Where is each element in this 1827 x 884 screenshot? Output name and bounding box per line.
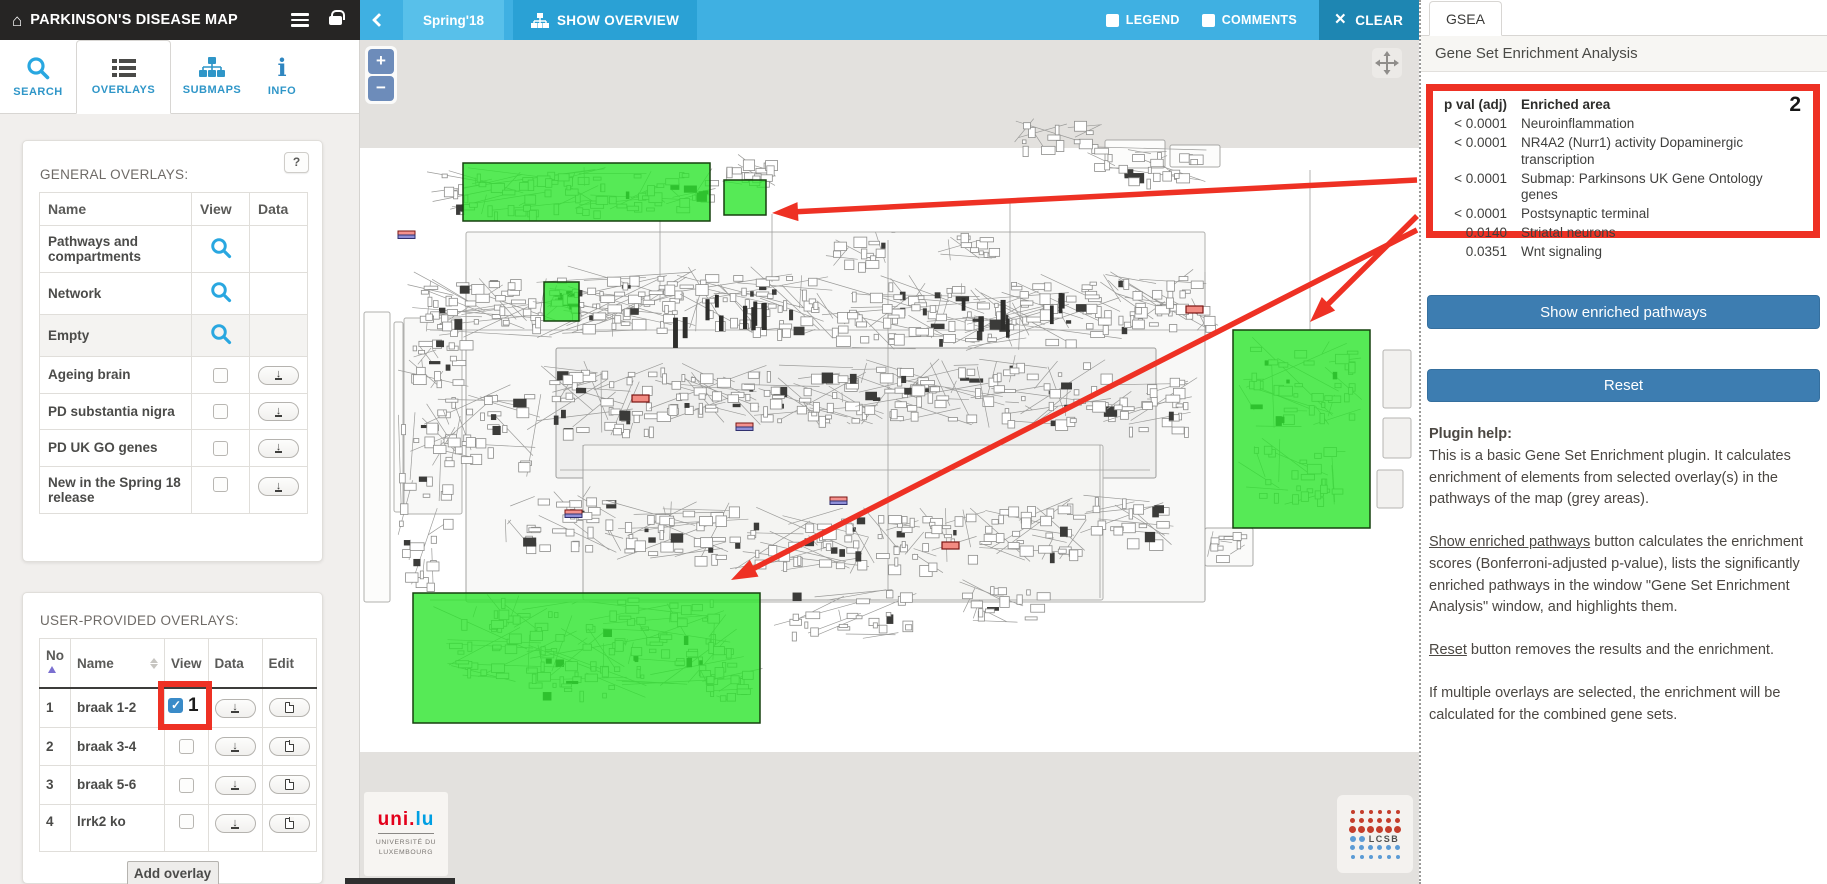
user-overlays-card: USER-PROVIDED OVERLAYS: No Name View Dat…: [22, 592, 323, 884]
reset-button[interactable]: Reset: [1427, 369, 1820, 402]
lock-icon[interactable]: [329, 16, 342, 25]
plugin-help-label: Plugin help:: [1429, 424, 1823, 446]
edit-button[interactable]: [269, 814, 310, 833]
lcsb-dot: [1360, 855, 1364, 859]
back-button[interactable]: [360, 0, 398, 40]
app-header: ⌂ PARKINSON'S DISEASE MAP: [0, 0, 360, 40]
search-icon: [26, 56, 50, 80]
document-page-icon: [285, 702, 294, 713]
left-sidebar: SEARCH OVERLAYS SUBMAPS: [0, 40, 360, 884]
view-checkbox[interactable]: [213, 441, 228, 456]
lcsb-dot: [1394, 826, 1401, 833]
lcsb-dot: [1369, 810, 1373, 814]
enriched-area-highlight[interactable]: [463, 163, 710, 221]
tab-submaps-label: SUBMAPS: [183, 84, 242, 96]
download-button[interactable]: ↓: [215, 699, 256, 718]
view-magnifier-icon[interactable]: [210, 323, 232, 345]
enriched-area-name[interactable]: NR4A2 (Nurr1) activity Dopaminergic tran…: [1521, 134, 1790, 170]
lcsb-dot: [1359, 818, 1365, 824]
overlay-name: PD UK GO genes: [40, 430, 192, 467]
download-button[interactable]: ↓: [258, 477, 299, 496]
sort-icon: [150, 658, 158, 669]
lcsb-dot: [1350, 836, 1356, 842]
lcsb-dot: [1360, 810, 1364, 814]
plugin-help-text: Plugin help: This is a basic Gene Set En…: [1429, 424, 1823, 747]
sidebar-tabs: SEARCH OVERLAYS SUBMAPS: [0, 40, 359, 114]
lcsb-dot: [1369, 855, 1373, 859]
col-header-name: Name: [40, 193, 192, 226]
view-magnifier-icon[interactable]: [210, 237, 232, 259]
col-header-no[interactable]: No: [40, 639, 71, 689]
table-row: PD UK GO genes ↓: [40, 430, 308, 467]
col-header-pval: p val (adj): [1441, 96, 1521, 115]
hierarchy-tree-icon: [531, 13, 549, 28]
table-row: Ageing brain ↓: [40, 357, 308, 394]
overlay-name: Pathways and compartments: [40, 226, 192, 273]
document-page-icon: [285, 818, 294, 829]
overlay-no: 4: [40, 804, 71, 851]
lcsb-dot: [1377, 845, 1383, 851]
col-header-name[interactable]: Name: [71, 639, 165, 689]
overlay-name: New in the Spring 18 release: [40, 466, 192, 513]
lcsb-dot: [1350, 845, 1356, 851]
zoom-in-button[interactable]: +: [368, 49, 394, 74]
help-button[interactable]: ?: [284, 152, 309, 173]
lcsb-dot: [1378, 810, 1382, 814]
lcsb-dot: [1376, 826, 1383, 833]
lcsb-dot: [1351, 810, 1355, 814]
comments-label: COMMENTS: [1222, 13, 1297, 27]
lcsb-dot: [1395, 845, 1401, 851]
comments-toggle[interactable]: COMMENTS: [1202, 13, 1297, 27]
minerva-app: ⌂ PARKINSON'S DISEASE MAP Spring'18 SHOW…: [0, 0, 1827, 884]
lcsb-dot: [1367, 826, 1374, 833]
view-checkbox[interactable]: [179, 778, 194, 793]
table-row: Pathways and compartments: [40, 226, 308, 273]
lcsb-dot: [1378, 855, 1382, 859]
lcsb-dot: [1377, 818, 1383, 824]
document-page-icon: [285, 779, 294, 790]
table-row: New in the Spring 18 release ↓: [40, 466, 308, 513]
lcsb-dot: [1368, 818, 1374, 824]
tab-search-label: SEARCH: [13, 86, 62, 98]
lcsb-dot: [1359, 845, 1365, 851]
legend-toggle[interactable]: LEGEND: [1106, 13, 1180, 27]
annotation-number: 2: [1789, 93, 1801, 117]
lcsb-dot: [1358, 826, 1365, 833]
legend-checkbox[interactable]: [1106, 14, 1119, 27]
enriched-area-highlight[interactable]: [724, 180, 766, 215]
tab-submaps[interactable]: SUBMAPS: [171, 40, 253, 113]
download-icon: ↓: [231, 742, 239, 752]
show-overview-label: SHOW OVERVIEW: [557, 13, 679, 28]
overlay-name: braak 5-6: [71, 766, 165, 805]
gsea-panel-title: Gene Set Enrichment Analysis: [1421, 36, 1827, 72]
annotation-box-1: 1: [158, 681, 212, 730]
lcsb-dot: [1351, 855, 1355, 859]
document-page-icon: [285, 741, 294, 752]
table-row: 0.0140Striatal neurons: [1441, 224, 1790, 243]
table-row: < 0.0001NR4A2 (Nurr1) activity Dopaminer…: [1441, 134, 1790, 170]
hamburger-menu-icon[interactable]: [291, 13, 309, 27]
add-overlay-button[interactable]: Add overlay: [127, 861, 219, 884]
overlay-name: lrrk2 ko: [71, 804, 165, 851]
enriched-area-name[interactable]: Neuroinflammation: [1521, 115, 1790, 134]
download-icon: ↓: [275, 482, 283, 492]
legend-label: LEGEND: [1126, 13, 1180, 27]
view-checkbox[interactable]: [213, 477, 228, 492]
overlay-name: Network: [40, 273, 192, 315]
pan-crosshair-icon[interactable]: [1372, 48, 1402, 78]
lcsb-dot: [1386, 845, 1392, 851]
general-overlays-title: GENERAL OVERLAYS:: [23, 141, 322, 192]
lcsb-dot: [1387, 810, 1391, 814]
comments-checkbox[interactable]: [1202, 14, 1215, 27]
lcsb-dot: [1350, 818, 1356, 824]
view-checkbox[interactable]: [213, 368, 228, 383]
gsea-results-table: p val (adj) Enriched area < 0.0001Neuroi…: [1441, 96, 1790, 262]
lcsb-dot: [1396, 810, 1400, 814]
enriched-area-highlight[interactable]: [1233, 330, 1370, 528]
unilu-logo: uni.lu UNIVERSITÉ DULUXEMBOURG: [364, 792, 448, 876]
enriched-area-name[interactable]: Submap: Parkinsons UK Gene Ontology gene…: [1521, 170, 1790, 206]
lcsb-dot: [1349, 826, 1356, 833]
gsea-panel: GSEA Gene Set Enrichment Analysis 2 p va…: [1419, 0, 1827, 884]
table-row: < 0.0001Neuroinflammation: [1441, 115, 1790, 134]
view-checkbox[interactable]: [213, 404, 228, 419]
download-icon: ↓: [231, 703, 239, 713]
table-row: Network: [40, 273, 308, 315]
edit-button[interactable]: [269, 698, 310, 717]
plugin-tabs: GSEA: [1421, 0, 1827, 36]
download-button[interactable]: ↓: [258, 366, 299, 385]
table-row: Empty: [40, 315, 308, 357]
horizontal-scrollbar-thumb[interactable]: [345, 878, 455, 884]
lcsb-dot: [1368, 845, 1374, 851]
col-header-view: View: [192, 193, 250, 226]
col-header-data: Data: [208, 639, 262, 689]
overlay-name: braak 1-2: [71, 688, 165, 727]
lcsb-dot: [1396, 855, 1400, 859]
table-row: 0.0351Wnt signaling: [1441, 243, 1790, 262]
tab-overlays[interactable]: OVERLAYS: [76, 40, 171, 114]
overlay-name: PD substantia nigra: [40, 393, 192, 430]
clear-x-icon: ×: [1335, 10, 1346, 29]
project-version-button[interactable]: Spring'18: [403, 0, 504, 40]
overlay-no: 3: [40, 766, 71, 805]
table-row: < 0.0001Submap: Parkinsons UK Gene Ontol…: [1441, 170, 1790, 206]
enriched-area-name[interactable]: Wnt signaling: [1521, 243, 1790, 262]
clear-button[interactable]: × CLEAR: [1319, 0, 1419, 40]
lcsb-dot: [1395, 818, 1401, 824]
map-viewport: + − uni.lu UNIVERSITÉ DULUXEMBOURG LCSB: [360, 40, 1419, 884]
annotation-number: 1: [188, 695, 199, 717]
tab-overlays-label: OVERLAYS: [92, 84, 156, 96]
sort-ascending-icon: [48, 666, 56, 673]
chevron-left-icon: [372, 13, 386, 27]
col-header-data: Data: [250, 193, 308, 226]
gsea-results-annotation-box: 2 p val (adj) Enriched area < 0.0001Neur…: [1426, 84, 1820, 238]
enriched-area-highlight[interactable]: [413, 593, 760, 723]
show-enriched-pathways-button[interactable]: Show enriched pathways: [1427, 295, 1820, 329]
enriched-area-name[interactable]: Postsynaptic terminal: [1521, 205, 1790, 224]
view-checkbox[interactable]: [168, 698, 183, 713]
table-row: 2 braak 3-4 ↓: [40, 727, 317, 766]
zoom-controls: + −: [365, 46, 397, 104]
tab-gsea[interactable]: GSEA: [1429, 1, 1502, 36]
user-overlays-table: No Name View Data Edit 1 braak 1-2 1: [39, 638, 317, 852]
tab-search[interactable]: SEARCH: [0, 40, 76, 113]
edit-button[interactable]: [269, 737, 310, 756]
submaps-tree-icon: [199, 57, 225, 78]
overlay-name: Empty: [40, 315, 192, 357]
view-checkbox[interactable]: [179, 814, 194, 829]
home-icon[interactable]: ⌂: [12, 12, 22, 29]
overlay-no: 1: [40, 688, 71, 727]
clear-label: CLEAR: [1355, 13, 1403, 28]
table-row: < 0.0001Postsynaptic terminal: [1441, 205, 1790, 224]
info-icon: i: [277, 57, 286, 79]
download-icon: ↓: [231, 819, 239, 829]
lcsb-logo: LCSB: [1337, 795, 1413, 873]
view-magnifier-icon[interactable]: [210, 281, 232, 303]
general-overlays-table: Name View Data Pathways and compartments…: [39, 192, 308, 514]
download-button[interactable]: ↓: [258, 439, 299, 458]
lcsb-dot: [1386, 818, 1392, 824]
table-row: 4 lrrk2 ko ↓: [40, 804, 317, 851]
reset-link: Reset: [1429, 642, 1467, 658]
map-toolbar: Spring'18 SHOW OVERVIEW LEGEND COMMENTS …: [360, 0, 1419, 40]
download-icon: ↓: [275, 443, 283, 453]
col-header-edit: Edit: [262, 639, 316, 689]
zoom-out-button[interactable]: −: [368, 76, 394, 101]
enriched-area-highlight[interactable]: [544, 282, 579, 321]
edit-button[interactable]: [269, 775, 310, 794]
list-icon: [112, 58, 136, 78]
lcsb-dot: [1387, 855, 1391, 859]
lcsb-dot: [1359, 836, 1365, 842]
lcsb-dot: [1385, 826, 1392, 833]
app-title: PARKINSON'S DISEASE MAP: [30, 12, 291, 28]
tab-info-label: INFO: [268, 85, 296, 97]
user-overlays-title: USER-PROVIDED OVERLAYS:: [23, 593, 322, 638]
general-overlays-card: ? GENERAL OVERLAYS: Name View Data Pathw…: [22, 140, 323, 562]
download-icon: ↓: [231, 780, 239, 790]
table-row: 1 braak 1-2 1 ↓: [40, 688, 317, 727]
col-header-area: Enriched area: [1521, 96, 1790, 115]
download-button[interactable]: ↓: [215, 776, 256, 795]
table-row: PD substantia nigra ↓: [40, 393, 308, 430]
download-button[interactable]: ↓: [258, 402, 299, 421]
download-button[interactable]: ↓: [215, 737, 256, 756]
view-checkbox[interactable]: [179, 739, 194, 754]
download-icon: ↓: [275, 407, 283, 417]
download-icon: ↓: [275, 370, 283, 380]
show-enriched-link: Show enriched pathways: [1429, 534, 1590, 550]
tab-info[interactable]: i INFO: [253, 40, 311, 113]
overlay-name: braak 3-4: [71, 727, 165, 766]
table-row: 3 braak 5-6 ↓: [40, 766, 317, 805]
overlay-no: 2: [40, 727, 71, 766]
show-overview-button[interactable]: SHOW OVERVIEW: [513, 0, 697, 40]
overlay-name: Ageing brain: [40, 357, 192, 394]
pathway-map-canvas[interactable]: [360, 40, 1419, 884]
download-button[interactable]: ↓: [215, 814, 256, 833]
lcsb-label: LCSB: [1369, 834, 1400, 844]
enriched-area-name[interactable]: Striatal neurons: [1521, 224, 1790, 243]
